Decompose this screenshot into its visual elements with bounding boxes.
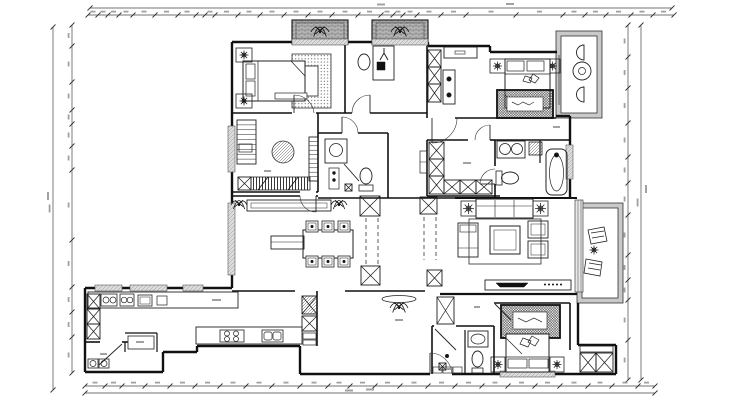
sliding-door bbox=[575, 200, 583, 292]
cooktop bbox=[220, 330, 244, 342]
dining-chair bbox=[322, 221, 334, 232]
dining-table bbox=[303, 230, 353, 258]
shower-hatched bbox=[529, 142, 542, 155]
floor-plan-screenshot bbox=[0, 0, 740, 400]
counter-box bbox=[157, 296, 167, 305]
dim-chain-left-segments bbox=[68, 23, 75, 376]
bedroom2-rug-center bbox=[513, 312, 547, 329]
patio-flower bbox=[590, 246, 599, 255]
cabinet-box bbox=[303, 333, 316, 339]
door-arc bbox=[475, 125, 490, 140]
wardrobe-xbox bbox=[428, 50, 441, 67]
dining-chair bbox=[306, 256, 318, 267]
lamp bbox=[535, 203, 546, 214]
micro-label bbox=[506, 3, 514, 5]
window bbox=[130, 285, 167, 291]
master-rug-center bbox=[507, 97, 543, 111]
guest-sink-basin bbox=[471, 334, 485, 344]
fridge-hatched bbox=[302, 296, 317, 314]
entry-step bbox=[453, 367, 462, 373]
storage-xbox bbox=[437, 297, 454, 324]
column-xbox bbox=[420, 197, 437, 214]
dining-bench bbox=[271, 236, 304, 249]
toilet-tank bbox=[472, 368, 483, 373]
nightstand-lamp bbox=[240, 51, 249, 60]
micro-label bbox=[395, 319, 403, 321]
dim-chain-right-segments bbox=[624, 23, 631, 383]
plant bbox=[331, 200, 347, 209]
nightstand-lamp bbox=[493, 62, 502, 71]
micro-label bbox=[645, 185, 647, 193]
entry-console bbox=[382, 296, 416, 303]
sideboard bbox=[247, 200, 331, 211]
micro-label bbox=[100, 353, 107, 355]
dining-chair bbox=[306, 221, 318, 232]
toilet bbox=[360, 168, 372, 184]
kitchen-sink-bowl bbox=[103, 297, 109, 303]
vanity-sink bbox=[512, 144, 523, 155]
shelf-unit bbox=[237, 120, 256, 164]
burner bbox=[225, 337, 230, 342]
island-sink-bowl bbox=[264, 332, 272, 340]
door-leaf bbox=[435, 329, 456, 350]
dim-chain-top-segments bbox=[86, 11, 677, 18]
wardrobe-xbox bbox=[580, 353, 596, 372]
door-arc bbox=[342, 117, 358, 133]
cabinet-xbox bbox=[238, 177, 251, 190]
wardrobe-xbox bbox=[596, 353, 613, 372]
chaise-pillow bbox=[460, 225, 476, 232]
closet-xbox bbox=[444, 180, 460, 194]
door-arc bbox=[352, 95, 370, 113]
door-arc bbox=[300, 196, 316, 212]
bathtub-basin bbox=[550, 155, 564, 191]
wardrobe-xbox bbox=[428, 84, 441, 102]
micro-label bbox=[553, 126, 560, 128]
oven-inner bbox=[140, 297, 150, 304]
dresser-knob bbox=[447, 93, 451, 97]
shower-door-leaf bbox=[344, 164, 359, 181]
micro-label bbox=[47, 192, 49, 200]
window bbox=[372, 39, 428, 45]
dresser-knob bbox=[447, 77, 451, 81]
closet-xbox bbox=[429, 159, 444, 176]
column-xbox bbox=[361, 266, 380, 285]
dining-chair bbox=[338, 221, 350, 232]
dining-chair bbox=[338, 256, 350, 267]
vanity-sink bbox=[500, 144, 511, 155]
chaise-lounge bbox=[458, 223, 478, 257]
desk-chair bbox=[358, 54, 370, 70]
shelf-unit bbox=[309, 137, 318, 181]
dresser-handle bbox=[455, 51, 465, 54]
wardrobe-xbox bbox=[428, 67, 441, 84]
bed-runner bbox=[275, 93, 307, 99]
window bbox=[95, 285, 122, 291]
bath-sink-round bbox=[330, 144, 343, 157]
dim-chain-right-overall bbox=[637, 23, 644, 383]
washer-door bbox=[101, 361, 107, 367]
dim-chain-bottom-segments bbox=[83, 382, 658, 389]
vanity-double bbox=[497, 141, 525, 158]
cabinet-xbox bbox=[302, 316, 317, 331]
coffee-table-inner bbox=[494, 230, 516, 250]
armchair-inner bbox=[531, 224, 545, 235]
cabinet-box bbox=[303, 340, 316, 345]
window bbox=[228, 203, 235, 275]
dresser bbox=[443, 70, 455, 104]
micro-label bbox=[212, 299, 221, 301]
window bbox=[228, 126, 235, 172]
desk-monitor bbox=[377, 62, 385, 70]
dim-chain-top-overall bbox=[88, 4, 675, 11]
tv-screen bbox=[496, 283, 528, 287]
bath-vanity bbox=[325, 139, 347, 163]
island-counter bbox=[196, 327, 302, 344]
island-sink-bowl bbox=[273, 332, 281, 340]
window bbox=[183, 285, 203, 291]
closet-xbox bbox=[429, 176, 444, 194]
column-xbox bbox=[427, 270, 442, 286]
dim-chain-left-overall bbox=[49, 25, 56, 393]
kitchen-sink-bowl bbox=[110, 297, 116, 303]
dim-chain-bottom-overall bbox=[83, 389, 658, 396]
column-xbox bbox=[360, 196, 380, 216]
toilet bbox=[502, 172, 519, 184]
micro-label bbox=[474, 306, 480, 308]
entry-plant bbox=[390, 303, 408, 313]
floor-drain bbox=[345, 184, 352, 191]
round-rug-hatched bbox=[272, 141, 294, 163]
balcony-right-floor bbox=[582, 208, 618, 298]
sofa bbox=[476, 199, 533, 218]
micro-label bbox=[463, 162, 471, 164]
door-arc bbox=[480, 169, 495, 184]
balcony-top-floor bbox=[561, 36, 597, 113]
closet-xbox bbox=[429, 142, 444, 159]
nightstand-lamp bbox=[240, 97, 249, 106]
kitchen-sink-bowl bbox=[121, 297, 127, 303]
tall-cabinet-xbox bbox=[87, 309, 100, 324]
washer-door bbox=[90, 361, 96, 367]
micro-label bbox=[446, 368, 452, 370]
window bbox=[292, 39, 348, 45]
floor-plan-canvas bbox=[0, 0, 740, 400]
toilet-tank bbox=[359, 185, 373, 191]
dining-chair bbox=[322, 256, 334, 267]
lamp bbox=[463, 203, 474, 214]
shelf-box bbox=[239, 144, 252, 152]
toilet bbox=[472, 351, 483, 367]
nightstand-lamp bbox=[553, 360, 562, 369]
tall-cabinet-xbox bbox=[87, 294, 100, 309]
closet-xbox bbox=[476, 180, 492, 194]
bath-shelf-dot bbox=[333, 179, 335, 181]
niche-shelf bbox=[580, 346, 613, 352]
closet-xbox bbox=[460, 180, 476, 194]
dresser-long bbox=[444, 47, 477, 58]
micro-label bbox=[345, 390, 353, 392]
bathtub-faucet bbox=[555, 153, 559, 157]
burner bbox=[225, 331, 230, 336]
bath-shelf-dot bbox=[333, 172, 335, 174]
tall-cabinet-xbox bbox=[87, 324, 100, 339]
micro-label bbox=[264, 170, 271, 172]
av-equipment-dots bbox=[544, 284, 562, 286]
desk-lamp-icon bbox=[380, 48, 388, 60]
micro-label bbox=[136, 341, 144, 343]
nightstand-lamp bbox=[494, 360, 503, 369]
burner bbox=[234, 331, 239, 336]
shower-dot bbox=[446, 355, 449, 358]
kitchen-sink-bowl bbox=[127, 297, 133, 303]
armchair-inner bbox=[531, 244, 545, 255]
burner bbox=[234, 337, 239, 342]
floor-drain bbox=[439, 363, 446, 370]
